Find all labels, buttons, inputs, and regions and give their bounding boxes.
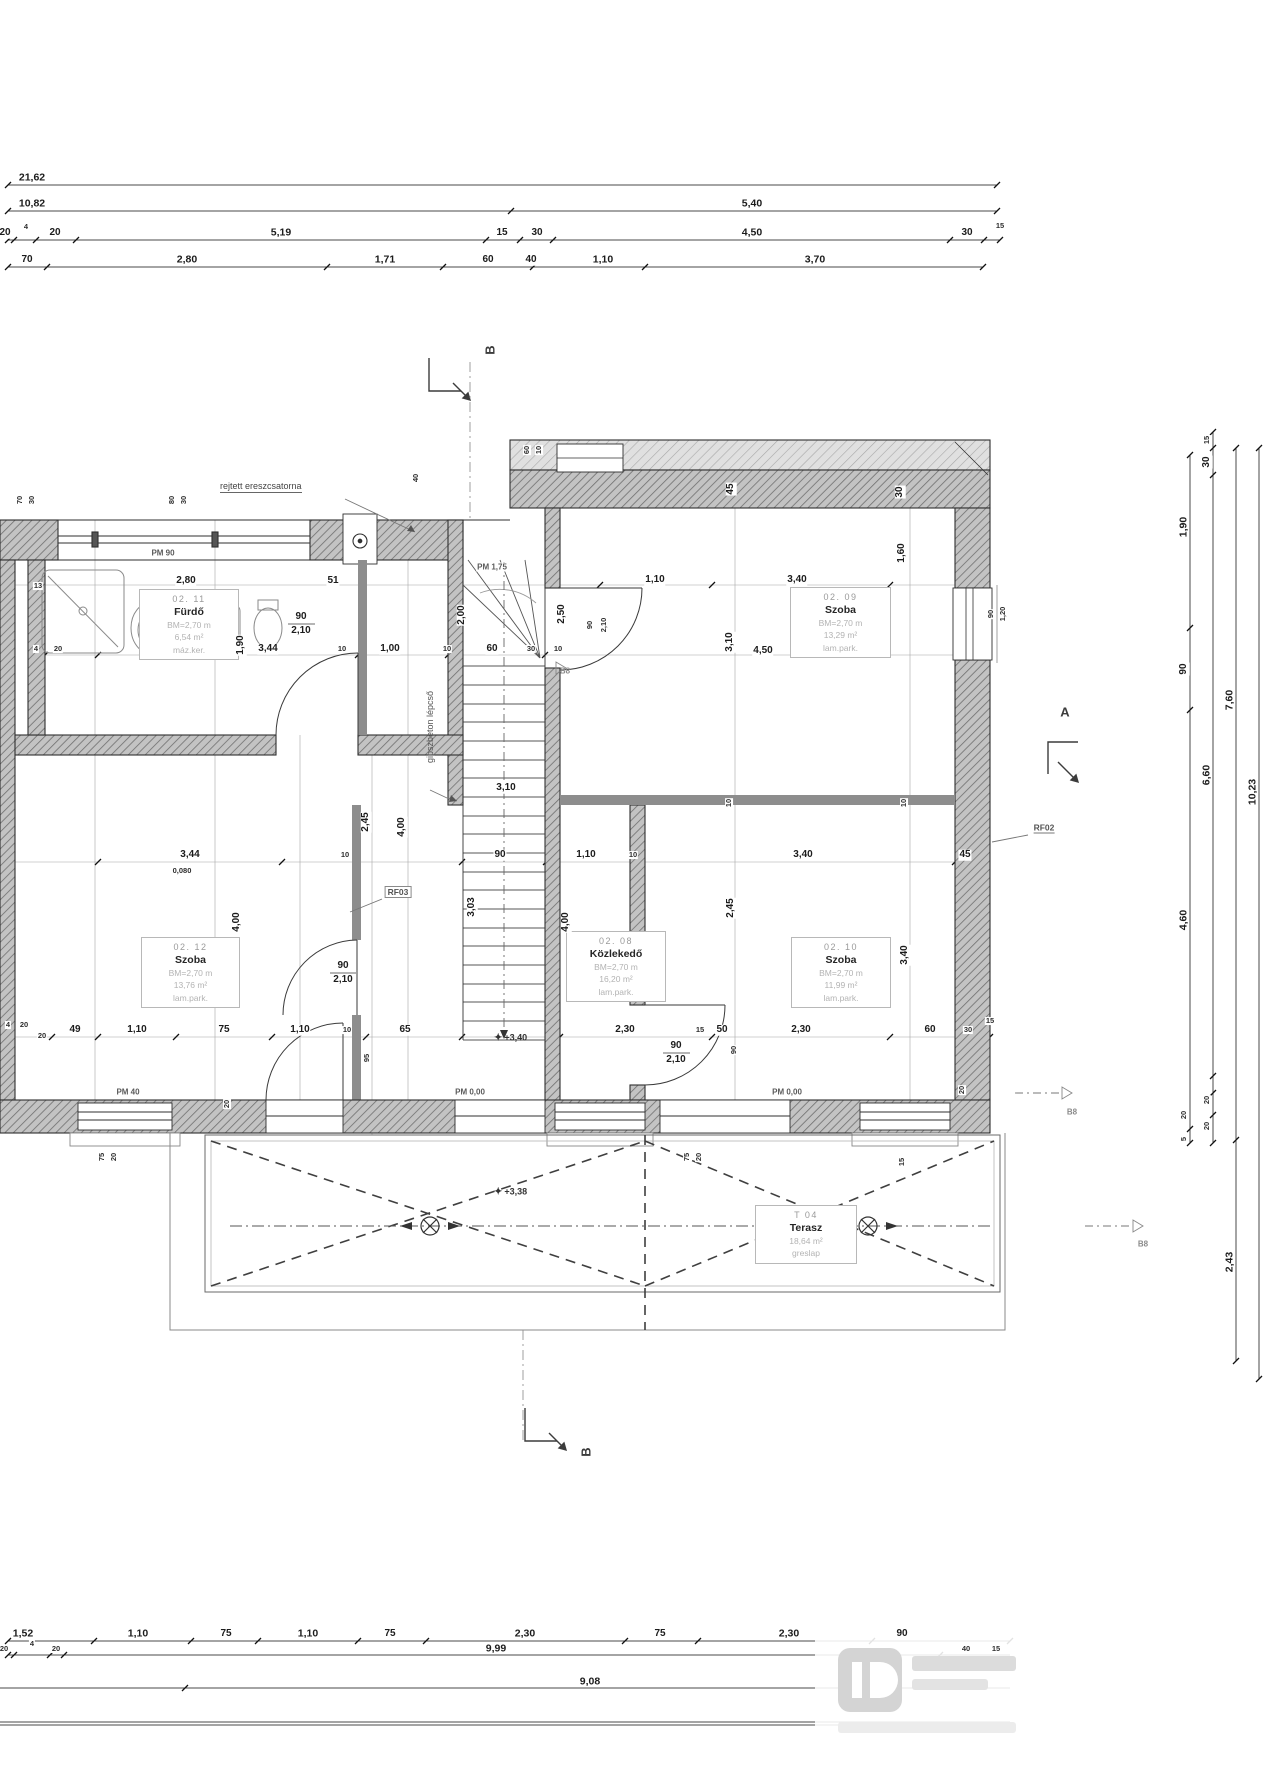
dim-label: 90 xyxy=(987,609,995,619)
level-mark-hall: ✦+3,40 xyxy=(494,1033,527,1044)
dim-label: 45 xyxy=(726,482,737,495)
dim-label: 75 xyxy=(219,1629,232,1640)
dim-label: 4,00 xyxy=(232,911,243,932)
dim-label: 2,30 xyxy=(614,1025,635,1036)
stair xyxy=(463,560,545,1040)
dim-label: 3,70 xyxy=(804,254,826,265)
dim-label: 10 xyxy=(340,851,350,859)
dim-label: 2,30 xyxy=(790,1025,811,1036)
dim-label: 5,40 xyxy=(741,198,763,209)
dim-label: 30 xyxy=(530,228,543,239)
dim-label: 30 xyxy=(180,495,188,505)
dim-label: 2,30 xyxy=(514,1628,536,1639)
dim-label: 75 xyxy=(98,1152,106,1162)
dim-label: 20 xyxy=(51,1645,61,1653)
parapet-label: PM 0,00 xyxy=(771,1088,803,1097)
dim-label: 90 xyxy=(586,620,594,630)
dim-label: 4,60 xyxy=(1178,909,1189,931)
dim-label: 4,00 xyxy=(561,911,572,932)
dim-label: 1,10 xyxy=(289,1025,310,1036)
terrace-stamp-t04: T 04 Terasz 18,64 m² greslap xyxy=(755,1205,857,1264)
dim-label: 4 xyxy=(33,645,39,653)
rf03-tag: RF03 xyxy=(385,886,412,898)
b8-tag: B8 xyxy=(1067,1108,1077,1117)
dim-label: 3,10 xyxy=(495,783,516,794)
room-area: 18,64 m² xyxy=(759,1235,853,1247)
room-height: BM=2,70 m xyxy=(143,619,235,631)
dim-label: 10 xyxy=(900,798,908,808)
dim-label: 20 xyxy=(695,1152,703,1162)
dim-label: 2,00 xyxy=(457,604,468,625)
dim-label: 20 xyxy=(1180,1110,1188,1120)
dim-label: 3,03 xyxy=(467,896,478,917)
dim-label: 20 xyxy=(37,1032,47,1040)
dim-label: 1,52 xyxy=(12,1628,34,1639)
dim-label: 60 xyxy=(923,1025,936,1036)
dim-label: 9,08 xyxy=(579,1676,601,1687)
room-floor: lam.park. xyxy=(145,992,236,1004)
room-name: Szoba xyxy=(145,954,236,966)
dim-label: 80 xyxy=(168,495,176,505)
dim-label: 50 xyxy=(715,1025,728,1036)
dim-label: 20 xyxy=(0,1645,9,1653)
room-code: 02. 09 xyxy=(794,592,887,602)
dim-label: 30 xyxy=(526,645,536,653)
room-name: Fürdő xyxy=(143,606,235,618)
room-height: BM=2,70 m xyxy=(570,961,662,973)
dim-label: 75 xyxy=(217,1025,230,1036)
dim-label: 20 xyxy=(1203,1095,1211,1105)
room-stamp-0209: 02. 09 Szoba BM=2,70 m 13,29 m² lam.park… xyxy=(790,587,891,658)
dim-label: 90 xyxy=(669,1041,682,1052)
dim-label: 90 xyxy=(336,961,349,972)
room-height: BM=2,70 m xyxy=(795,967,887,979)
dim-label: 4,50 xyxy=(752,646,773,657)
dim-label: 1,10 xyxy=(575,850,596,861)
level-star-icon: ✦ xyxy=(494,1033,502,1044)
parapet-label: PM 90 xyxy=(150,549,175,558)
room-code: T 04 xyxy=(759,1210,853,1220)
dim-label: 4,00 xyxy=(397,816,408,837)
dim-label: 20 xyxy=(110,1152,118,1162)
dim-label: 20 xyxy=(0,228,12,239)
dim-label: 65 xyxy=(398,1025,411,1036)
room-stamp-0210: 02. 10 Szoba BM=2,70 m 11,99 m² lam.park… xyxy=(791,937,891,1008)
dim-label: 40 xyxy=(961,1645,971,1653)
dim-label: 3,44 xyxy=(179,850,200,861)
dim-label: 1,90 xyxy=(1178,516,1189,538)
doors-layer xyxy=(266,588,725,1100)
eaves-note: rejtett ereszcsatorna xyxy=(220,481,302,493)
level-star-icon: ✦ xyxy=(494,1187,502,1198)
dim-label: 3,44 xyxy=(257,644,278,655)
dim-label: 95 xyxy=(363,1053,371,1063)
room-code: 02. 11 xyxy=(143,594,235,604)
dim-label: 5 xyxy=(1180,1136,1188,1142)
dim-label: 10,82 xyxy=(18,198,46,209)
room-name: Szoba xyxy=(795,954,887,966)
room-stamp-0208: 02. 08 Közlekedő BM=2,70 m 16,20 m² lam.… xyxy=(566,931,666,1002)
dim-label: 0,080 xyxy=(172,867,193,875)
dim-label: 2,80 xyxy=(175,576,196,587)
dim-label: 3,40 xyxy=(786,575,807,586)
parapet-label: PM 1,75 xyxy=(476,563,508,572)
dim-label: 15 xyxy=(995,222,1005,230)
dim-label: 20 xyxy=(223,1099,231,1109)
room-stamp-0212: 02. 12 Szoba BM=2,70 m 13,76 m² lam.park… xyxy=(141,937,240,1008)
dim-label: 45 xyxy=(958,850,971,861)
room-name: Terasz xyxy=(759,1222,853,1234)
dim-label: 1,20 xyxy=(999,606,1007,623)
room-floor: lam.park. xyxy=(794,642,887,654)
dim-label: 15 xyxy=(898,1157,906,1167)
level-value: +3,38 xyxy=(504,1187,527,1197)
room-code: 02. 10 xyxy=(795,942,887,952)
dim-label: 13 xyxy=(33,582,43,590)
dim-label: 75 xyxy=(383,1629,396,1640)
dim-label: 70 xyxy=(16,495,24,505)
room-floor: máz.ker. xyxy=(143,644,235,656)
dim-label: 3,40 xyxy=(900,944,911,965)
dim-label: 10 xyxy=(337,645,347,653)
dim-label: 1,10 xyxy=(592,254,614,265)
dim-label: 49 xyxy=(68,1025,81,1036)
floor-plan-page: 02. 11 Fürdő BM=2,70 m 6,54 m² máz.ker. … xyxy=(0,0,1280,1768)
room-height: BM=2,70 m xyxy=(794,617,887,629)
dim-label: 2,50 xyxy=(557,603,568,624)
dim-label: 10 xyxy=(628,851,638,859)
dim-label: 21,62 xyxy=(18,172,46,183)
section-letter-b-bottom: B xyxy=(579,1447,594,1456)
dim-label: 20 xyxy=(19,1021,29,1029)
dim-label: 2,10 xyxy=(600,617,608,634)
room-floor: greslap xyxy=(759,1247,853,1259)
room-stamp-0211: 02. 11 Fürdő BM=2,70 m 6,54 m² máz.ker. xyxy=(139,589,239,660)
room-name: Szoba xyxy=(794,604,887,616)
dim-label: 2,43 xyxy=(1224,1251,1235,1273)
room-floor: lam.park. xyxy=(570,986,662,998)
dim-label: 1,00 xyxy=(379,644,400,655)
room-area: 16,20 m² xyxy=(570,973,662,985)
dim-label: 15 xyxy=(1203,435,1211,445)
dim-label: 2,45 xyxy=(726,897,737,918)
rf02-tag: RF02 xyxy=(1034,823,1055,834)
room-height: BM=2,70 m xyxy=(145,967,236,979)
dim-label: 15 xyxy=(495,228,508,239)
dim-label: 90 xyxy=(294,612,307,623)
room-area: 11,99 m² xyxy=(795,979,887,991)
dim-label: 1,10 xyxy=(126,1025,147,1036)
dim-label: 15 xyxy=(991,1645,1001,1653)
dim-label: 3,40 xyxy=(792,850,813,861)
dim-label: 60 xyxy=(523,445,531,455)
b8-tag: B8 xyxy=(560,667,570,676)
dim-label: 1,90 xyxy=(236,634,247,655)
dim-label: 3,10 xyxy=(725,631,736,652)
dim-label: 4 xyxy=(29,1640,35,1648)
dim-label: 30 xyxy=(963,1026,973,1034)
dim-label: 1,10 xyxy=(127,1628,149,1639)
dim-label: 4 xyxy=(23,223,29,231)
section-letter-a: A xyxy=(1060,705,1069,720)
dim-label: 1,10 xyxy=(297,1628,319,1639)
dim-label: 15 xyxy=(985,1017,995,1025)
dim-label: 20 xyxy=(48,228,61,239)
dim-label: 2,10 xyxy=(290,626,311,637)
dim-label: 4 xyxy=(5,1021,11,1029)
dim-label: 75 xyxy=(683,1152,691,1162)
dim-label: 2,10 xyxy=(332,975,353,986)
dim-label: 40 xyxy=(524,255,537,266)
dim-label: 15 xyxy=(695,1026,705,1034)
dim-label: 10 xyxy=(342,1026,352,1034)
dim-label: 5,19 xyxy=(270,227,292,238)
dim-label: 7,60 xyxy=(1224,689,1235,711)
room-code: 02. 08 xyxy=(570,936,662,946)
dim-label: 10 xyxy=(725,798,733,808)
dim-label: 30 xyxy=(1202,455,1213,468)
dim-label: 10 xyxy=(535,445,543,455)
dim-label: 6,60 xyxy=(1201,764,1212,786)
dim-label: 4,50 xyxy=(741,227,763,238)
dim-label: 90 xyxy=(1179,662,1190,675)
dim-label: 2,30 xyxy=(778,1628,800,1639)
dim-label: 10,23 xyxy=(1247,778,1258,806)
dim-label: 30 xyxy=(960,228,973,239)
room-floor: lam.park. xyxy=(795,992,887,1004)
b8-tag: B8 xyxy=(1138,1240,1148,1249)
room-area: 13,29 m² xyxy=(794,629,887,641)
parapet-label: PM 0,00 xyxy=(454,1088,486,1097)
stair-note: gipszbeton lépcső xyxy=(425,691,435,763)
dim-label: 90 xyxy=(895,1629,908,1640)
dim-label: 30 xyxy=(28,495,36,505)
parapet-label: PM 40 xyxy=(115,1088,140,1097)
dim-label: 9,99 xyxy=(485,1643,507,1654)
terrace xyxy=(170,1133,1005,1330)
dim-label: 20 xyxy=(53,645,63,653)
section-letter-b-top: B xyxy=(483,345,498,354)
dim-label: 60 xyxy=(481,255,494,266)
dim-label: 75 xyxy=(653,1629,666,1640)
dim-label: 90 xyxy=(730,1045,738,1055)
dim-label: 2,10 xyxy=(665,1055,686,1066)
dim-label: 60 xyxy=(485,644,498,655)
room-name: Közlekedő xyxy=(570,948,662,960)
level-mark-terrace: ✦+3,38 xyxy=(494,1187,527,1198)
dim-label: 1,10 xyxy=(644,575,665,586)
dim-label: 70 xyxy=(20,255,33,266)
level-value: +3,40 xyxy=(504,1033,527,1043)
dim-label: 90 xyxy=(493,850,506,861)
dim-label: 30 xyxy=(895,485,906,498)
dim-label: 10 xyxy=(442,645,452,653)
dim-label: 1,71 xyxy=(374,254,396,265)
dim-label: 1,60 xyxy=(897,542,908,563)
room-code: 02. 12 xyxy=(145,942,236,952)
dim-label: 10 xyxy=(553,645,563,653)
room-area: 13,76 m² xyxy=(145,979,236,991)
dim-label: 40 xyxy=(412,473,420,483)
room-area: 6,54 m² xyxy=(143,631,235,643)
dim-label: 2,45 xyxy=(361,811,372,832)
dim-label: 2,80 xyxy=(176,254,198,265)
dim-label: 20 xyxy=(958,1085,966,1095)
dim-label: 51 xyxy=(326,576,339,587)
dim-label: 20 xyxy=(1203,1121,1211,1131)
